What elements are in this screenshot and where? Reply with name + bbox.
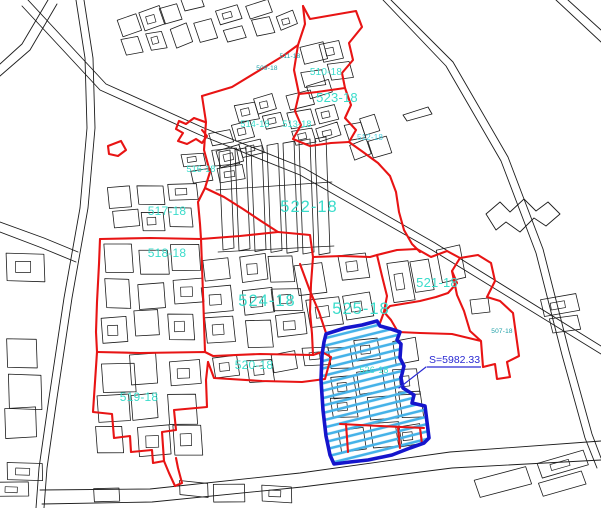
parcel-label-513-18: 513-18 [282,119,311,129]
area-value-label: S=5982.33 [429,354,480,366]
parcel-label-520-18: 520-18 [235,358,274,372]
street-network [0,0,601,508]
parcel-label-511-18: 511-18 [280,53,301,60]
parcel-label-507-18: 507-18 [491,328,513,335]
parcel-label-524-18: 524-18 [238,292,295,310]
area-annotation: S=5982.33 [399,354,481,388]
parcel-labels: 509-18511-18510-18523-18514-18513-18512-… [120,53,513,404]
parcel-label-523-18: 523-18 [316,90,358,105]
parcel-label-516-18: 516-18 [186,164,215,174]
parcel-label-519-18: 519-18 [120,390,159,404]
parcel-label-521-18: 521-18 [416,275,458,290]
parcel-label-525-18: 525-18 [332,300,389,318]
parcel-label-518-18: 518-18 [148,246,187,260]
parcel-label-522-18: 522-18 [280,198,337,216]
parcel-label-517-18: 517-18 [148,204,187,218]
parcel-label-514-18: 514-18 [240,119,269,129]
cadastral-map: 509-18511-18510-18523-18514-18513-18512-… [0,0,601,508]
map-canvas: 509-18511-18510-18523-18514-18513-18512-… [0,0,601,508]
parcel-label-512-18: 512-18 [357,133,383,142]
parcel-label-510-18: 510-18 [310,67,343,78]
parcel-label-526-18: 526-18 [359,365,388,375]
parcel-label-509-18: 509-18 [256,65,278,72]
building-parcels [0,0,593,508]
